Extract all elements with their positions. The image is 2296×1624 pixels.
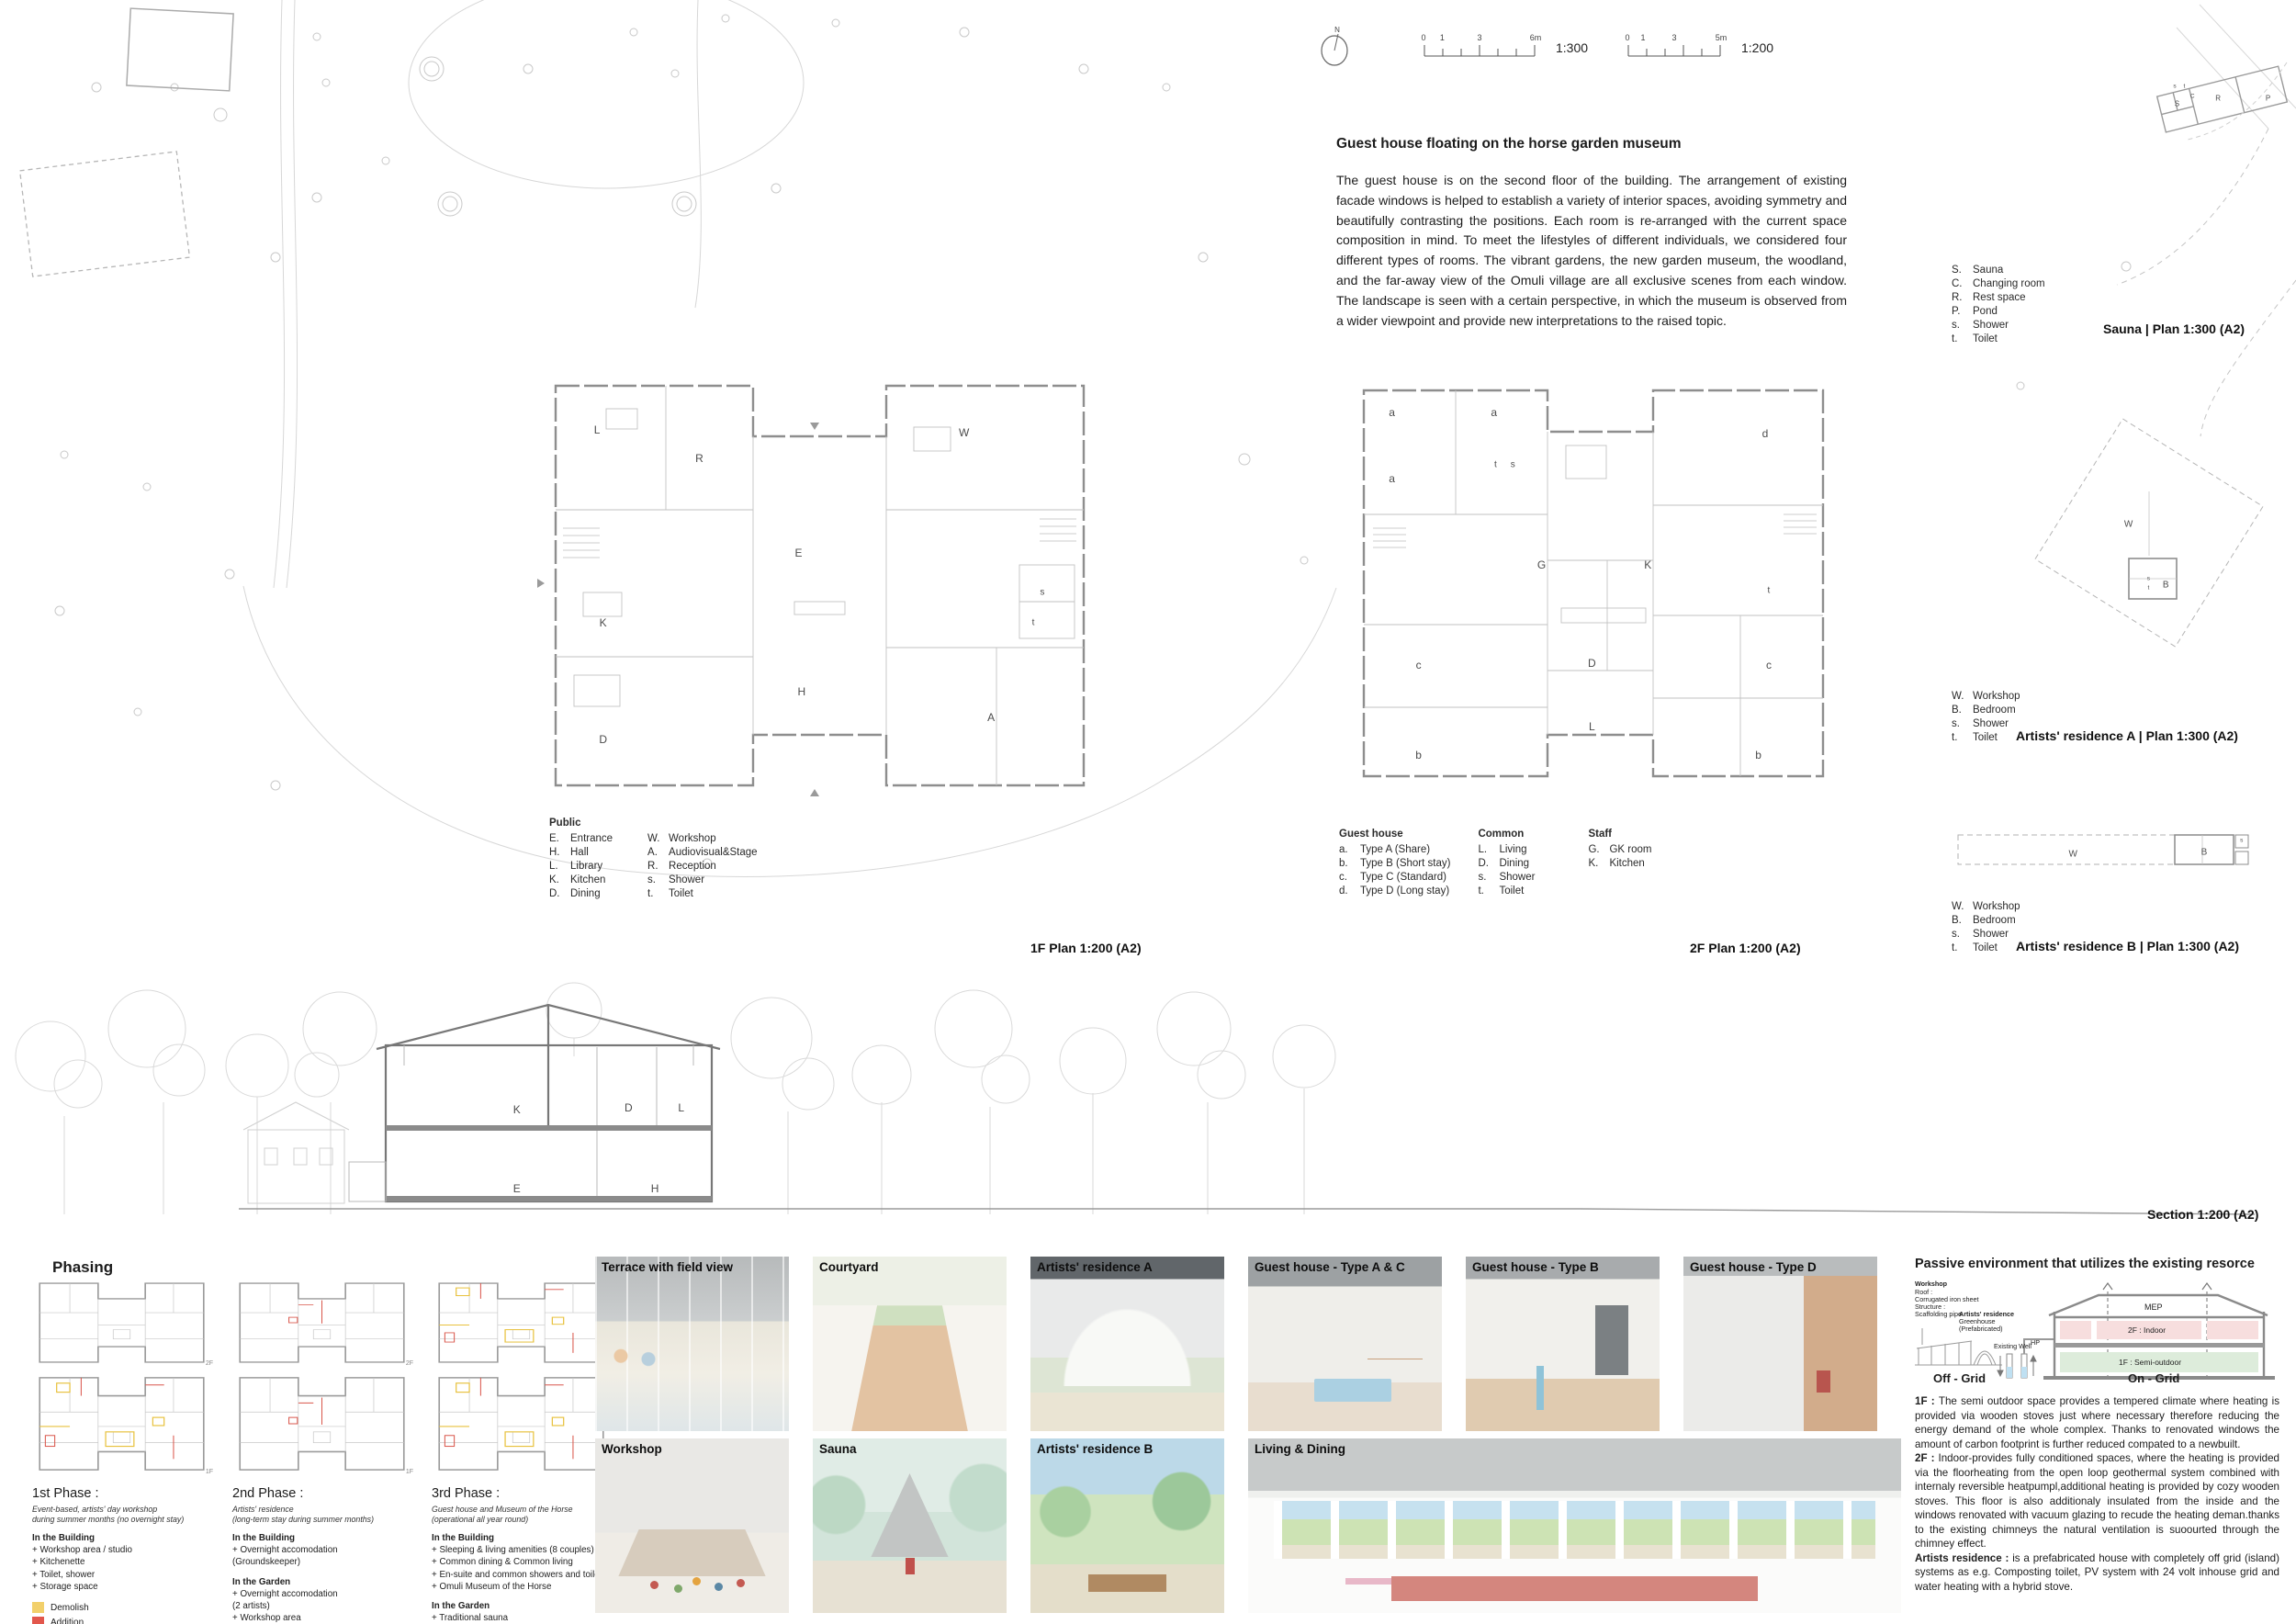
legend-2f-group: StaffG.GK roomK.Kitchen (1588, 828, 1671, 898)
scalebar-number: 5m (1716, 33, 1728, 42)
plan-2f-label: 2F Plan 1:200 (A2) (1690, 941, 1801, 955)
legend-abbr: t. (1952, 942, 1973, 955)
passive-paragraph-lead: 1F : (1915, 1395, 1939, 1407)
legend-resb-wrap: W.WorkshopB.Bedrooms.Showert.Toilet (1952, 900, 2020, 955)
scalebar-number: 3 (1671, 33, 1676, 42)
gallery-image-label: Guest house - Type A & C (1255, 1260, 1405, 1274)
legend-row: t.Toilet (1952, 333, 2045, 346)
gallery-image-shape (851, 1305, 968, 1431)
legend-name: Toilet (669, 887, 693, 901)
room-letter: C (2190, 94, 2195, 100)
legend-2f-group-title: Staff (1588, 828, 1671, 841)
room-letter: a (1389, 472, 1395, 485)
legend-row: t.Toilet (647, 887, 758, 901)
legend-name: Rest space (1973, 291, 2026, 305)
legend-row: t.Toilet (1952, 731, 2020, 745)
legend-name: Hall (570, 846, 589, 860)
gallery-image-artists-residence-a: Artists' residence A (1030, 1257, 1224, 1431)
room-letter: t (1768, 585, 1771, 595)
legend-name: Shower (669, 874, 704, 887)
room-letter: W (2124, 520, 2133, 530)
legend-name: Library (570, 860, 602, 874)
legend-name: Type A (Share) (1360, 843, 1430, 857)
legend-name: Workshop (1973, 900, 2020, 914)
room-letter: t (1494, 460, 1497, 470)
gallery-image-label: Guest house - Type D (1690, 1260, 1817, 1274)
residence-a-label: Artists' residence A | Plan 1:300 (A2) (2016, 728, 2238, 743)
diagram-residence-line2: (Prefabricated) (1959, 1325, 2003, 1333)
legend-row: K.Kitchen (549, 874, 613, 887)
gallery-image-sauna: Sauna (813, 1438, 1007, 1613)
legend-abbr: H. (549, 846, 570, 860)
passive-environment-block: Passive environment that utilizes the ex… (1915, 1257, 2279, 1271)
legend-row: b.Type B (Short stay) (1339, 857, 1450, 871)
legend-abbr: t. (1478, 885, 1499, 898)
legend-1f-title: Public (549, 817, 758, 830)
legend-row: W.Workshop (647, 832, 758, 846)
legend-abbr: B. (1952, 914, 1973, 928)
legend-name: Reception (669, 860, 716, 874)
north-compass: N (1315, 24, 1356, 68)
legend-abbr: A. (647, 846, 669, 860)
legend-abbr: D. (1478, 857, 1499, 871)
presentation-board: N 0136m 1:300 0135m 1:20 (0, 0, 2296, 1624)
room-letter: E (795, 547, 803, 559)
scalebar-number: 0 (1421, 33, 1425, 42)
legend-abbr: W. (1952, 900, 1973, 914)
legend-row: W.Workshop (1952, 690, 2020, 704)
scalebar-1200: 0135m (1627, 33, 1721, 61)
legend-sauna-wrap: S.SaunaC.Changing roomR.Rest spaceP.Pond… (1952, 264, 2045, 346)
diagram-well-label: Existing Well (1994, 1343, 2032, 1350)
room-letter: t (1032, 617, 1035, 627)
room-letter: K (513, 1103, 521, 1116)
diagram-hp-label: HP (2031, 1339, 2040, 1347)
legend-1f-col1: E.EntranceH.HallL.LibraryK.KitchenD.Dini… (549, 832, 613, 901)
passive-paragraph-lead: Artists residence : (1915, 1552, 2012, 1564)
legend-row: d.Type D (Long stay) (1339, 885, 1450, 898)
legend-row: a.Type A (Share) (1339, 843, 1450, 857)
legend-name: Shower (1973, 319, 2009, 333)
legend-name: Changing room (1973, 277, 2045, 291)
legend-row: H.Hall (549, 846, 613, 860)
legend-residence-a: W.WorkshopB.Bedrooms.Showert.Toilet (1952, 690, 2020, 745)
legend-abbr: a. (1339, 843, 1360, 857)
legend-name: Type C (Standard) (1360, 871, 1446, 885)
residence-b-label: Artists' residence B | Plan 1:300 (A2) (2016, 939, 2239, 953)
north-letter: N (1334, 26, 1340, 34)
legend-row: L.Living (1478, 843, 1560, 857)
gallery-image-shape (1817, 1370, 1830, 1393)
legend-abbr: t. (647, 887, 669, 901)
passive-paragraph-text: Indoor-provides fully conditioned spaces… (1915, 1452, 2279, 1550)
room-letter: B (2163, 581, 2169, 591)
room-letter: t (2183, 84, 2185, 90)
legend-row: t.Toilet (1952, 942, 2020, 955)
gallery-image-label: Artists' residence B (1037, 1442, 1153, 1456)
legend-row: s.Shower (1952, 319, 2045, 333)
legend-2f-group: CommonL.LivingD.Dinings.Showert.Toilet (1478, 828, 1560, 898)
sauna-plan-label: Sauna | Plan 1:300 (A2) (2103, 321, 2245, 336)
room-letter: D (1588, 657, 1596, 670)
on-grid-label: On - Grid (2128, 1371, 2179, 1385)
legend-name: Toilet (1973, 731, 1998, 745)
room-letter: L (1589, 720, 1595, 733)
room-letter: R (695, 452, 703, 465)
passive-paragraph: 1F : The semi outdoor space provides a t… (1915, 1394, 2279, 1451)
gallery-image-label: Sauna (819, 1442, 857, 1456)
legend-name: Bedroom (1973, 914, 2016, 928)
legend-abbr: W. (647, 832, 669, 846)
legend-row: B.Bedroom (1952, 914, 2020, 928)
room-letter: W (959, 426, 969, 439)
legend-name: Dining (570, 887, 601, 901)
legend-abbr: d. (1339, 885, 1360, 898)
passive-title: Passive environment that utilizes the ex… (1915, 1257, 2279, 1271)
legend-abbr: s. (1952, 319, 1973, 333)
room-letter: s (2173, 84, 2176, 90)
gallery-image-label: Courtyard (819, 1260, 879, 1274)
gallery-image-terrace-with-field-view: Terrace with field view (595, 1257, 789, 1431)
legend-abbr: s. (1952, 928, 1973, 942)
gallery-image-shape (610, 1347, 665, 1378)
plan-2f-drawing: aaatsdGKtccDLbb (1332, 377, 1855, 790)
legend-row: R.Reception (647, 860, 758, 874)
legend-name: GK room (1609, 843, 1651, 857)
legend-row: G.GK room (1588, 843, 1671, 857)
scalebar-1200-numbers: 0135m (1627, 33, 1721, 42)
passive-paragraph-text: The semi outdoor space provides a temper… (1915, 1395, 2279, 1450)
legend-row: s.Shower (1952, 717, 2020, 731)
legend-residence-b: W.WorkshopB.Bedrooms.Showert.Toilet (1952, 900, 2020, 955)
gallery-image-guest-house-type-a-c: Guest house - Type A & C (1248, 1257, 1442, 1431)
legend-name: Shower (1973, 717, 2009, 731)
legend-row: s.Shower (1478, 871, 1560, 885)
gallery-image-workshop: Workshop (595, 1438, 789, 1613)
legend-abbr: D. (549, 887, 570, 901)
legend-row: s.Shower (647, 874, 758, 887)
gallery-image-courtyard: Courtyard (813, 1257, 1007, 1431)
legend-abbr: s. (1478, 871, 1499, 885)
legend-name: Workshop (1973, 690, 2020, 704)
gallery-image-shape (1595, 1305, 1628, 1375)
intro-block: Guest house floating on the horse garden… (1336, 136, 1847, 332)
gallery-image-shape (1046, 1288, 1209, 1385)
section-drawing: KDLEH (239, 992, 2268, 1222)
legend-name: Audiovisual&Stage (669, 846, 758, 860)
scalebar-number: 3 (1477, 33, 1481, 42)
legend-name: Shower (1973, 928, 2009, 942)
legend-name: Toilet (1973, 942, 1998, 955)
passive-paragraph: Artists residence : is a prefabricated h… (1915, 1551, 2279, 1595)
legend-abbr: R. (647, 860, 669, 874)
sauna-plan-drawing: stSCRP (2149, 46, 2296, 147)
render-gallery: Terrace with field viewCourtyardArtists'… (0, 1257, 1915, 1624)
legend-abbr: P. (1952, 305, 1973, 319)
scalebar-number: 1 (1641, 33, 1646, 42)
scalebar-1300: 0136m (1424, 33, 1536, 61)
scalebar-number: 1 (1440, 33, 1445, 42)
legend-2f-wrap: Guest housea.Type A (Share)b.Type B (Sho… (1339, 828, 1671, 898)
legend-abbr: C. (1952, 277, 1973, 291)
legend-row: K.Kitchen (1588, 857, 1671, 871)
residence-b-drawing: WBs (1954, 822, 2267, 877)
room-letter: a (1389, 406, 1395, 419)
passive-paragraph-lead: 2F : (1915, 1452, 1939, 1464)
legend-row: c.Type C (Standard) (1339, 871, 1450, 885)
passive-paragraph: 2F : Indoor-provides fully conditioned s… (1915, 1451, 2279, 1551)
legend-abbr: B. (1952, 704, 1973, 717)
legend-row: W.Workshop (1952, 900, 2020, 914)
room-letter: H (651, 1182, 659, 1195)
legend-abbr: S. (1952, 264, 1973, 277)
room-letter: s (1040, 587, 1044, 597)
gallery-image-guest-house-type-d: Guest house - Type D (1683, 1257, 1877, 1431)
legend-name: Workshop (669, 832, 716, 846)
legend-row: D.Dining (1478, 857, 1560, 871)
room-letter: L (594, 423, 601, 436)
gallery-image-living-dining: Living & Dining (1248, 1438, 1901, 1613)
legend-name: Entrance (570, 832, 613, 846)
legend-name: Shower (1499, 871, 1535, 885)
legend-1f: Public E.EntranceH.HallL.LibraryK.Kitche… (549, 817, 758, 901)
room-letter: L (678, 1101, 684, 1114)
legend-2f: Guest housea.Type A (Share)b.Type B (Sho… (1339, 828, 1671, 898)
legend-name: Pond (1973, 305, 1998, 319)
room-letter: A (987, 711, 995, 724)
gallery-image-label: Workshop (602, 1442, 662, 1456)
scalebar-1300-numbers: 0136m (1424, 33, 1536, 42)
room-letter: D (625, 1101, 633, 1114)
legend-row: S.Sauna (1952, 264, 2045, 277)
legend-abbr: E. (549, 832, 570, 846)
room-letter: t (2147, 585, 2149, 592)
room-letter: W (2068, 849, 2077, 859)
room-letter: B (2201, 848, 2208, 858)
legend-abbr: K. (1588, 857, 1609, 871)
gallery-image-artists-residence-b: Artists' residence B (1030, 1438, 1224, 1613)
gallery-image-label: Living & Dining (1255, 1442, 1345, 1456)
legend-name: Toilet (1973, 333, 1998, 346)
legend-abbr: s. (647, 874, 669, 887)
room-letter: s (1511, 460, 1515, 470)
intro-title: Guest house floating on the horse garden… (1336, 136, 1847, 152)
gallery-image-accent (692, 1577, 701, 1585)
gallery-image-label: Terrace with field view (602, 1260, 733, 1274)
legend-abbr: L. (1478, 843, 1499, 857)
legend-abbr: L. (549, 860, 570, 874)
legend-name: Sauna (1973, 264, 2003, 277)
plan-1f-label: 1F Plan 1:200 (A2) (1030, 941, 1142, 955)
legend-row: C.Changing room (1952, 277, 2045, 291)
gallery-image-accent (906, 1558, 915, 1574)
legend-name: Living (1499, 843, 1526, 857)
gallery-image-shape (1314, 1379, 1391, 1402)
legend-row: A.Audiovisual&Stage (647, 846, 758, 860)
gallery-image-guest-house-type-b: Guest house - Type B (1466, 1257, 1660, 1431)
legend-name: Kitchen (1609, 857, 1644, 871)
gallery-image-shape (1088, 1574, 1165, 1592)
legend-name: Toilet (1499, 885, 1524, 898)
legend-1f-col2: W.WorkshopA.Audiovisual&StageR.Reception… (647, 832, 758, 901)
gallery-image-shape (1274, 1501, 1874, 1559)
gallery-image-shape (618, 1529, 765, 1576)
legend-abbr: c. (1339, 871, 1360, 885)
room-letter: a (1491, 406, 1497, 419)
room-letter: G (1537, 558, 1546, 571)
legend-name: Type B (Short stay) (1360, 857, 1450, 871)
legend-row: B.Bedroom (1952, 704, 2020, 717)
passive-paragraphs: 1F : The semi outdoor space provides a t… (1915, 1394, 2279, 1594)
room-letter: K (1644, 558, 1651, 571)
legend-abbr: b. (1339, 857, 1360, 871)
legend-2f-group: Guest housea.Type A (Share)b.Type B (Sho… (1339, 828, 1450, 898)
legend-2f-group-title: Common (1478, 828, 1560, 841)
diagram-workshop-line4: Scaffolding pipe (1915, 1311, 1962, 1318)
legend-sauna: S.SaunaC.Changing roomR.Rest spaceP.Pond… (1952, 264, 2045, 346)
legend-name: Dining (1499, 857, 1529, 871)
room-letter: R (2215, 95, 2221, 103)
legend-name: Type D (Long stay) (1360, 885, 1449, 898)
legend-name: Kitchen (570, 874, 605, 887)
room-letter: c (1766, 659, 1772, 671)
room-letter: D (599, 733, 607, 746)
room-letter: b (1415, 749, 1422, 761)
gallery-image-label: Guest house - Type B (1472, 1260, 1599, 1274)
room-letter: P (2266, 95, 2270, 103)
room-letter: E (513, 1182, 521, 1195)
legend-abbr: K. (549, 874, 570, 887)
gallery-image-label: Artists' residence A (1037, 1260, 1153, 1274)
room-letter: s (2147, 575, 2150, 581)
off-grid-label: Off - Grid (1933, 1371, 1986, 1385)
diagram-2f-label: 2F : Indoor (2128, 1325, 2166, 1335)
intro-body: The guest house is on the second floor o… (1336, 171, 1847, 332)
room-letter: b (1755, 749, 1761, 761)
residence-a-drawing: WBst (2011, 395, 2278, 671)
legend-row: R.Rest space (1952, 291, 2045, 305)
room-letter: d (1762, 427, 1769, 440)
scalebar-number: 6m (1530, 33, 1542, 42)
legend-row: D.Dining (549, 887, 613, 901)
legend-2f-group-title: Guest house (1339, 828, 1450, 841)
room-letter: s (2240, 838, 2243, 844)
gallery-image-shape (871, 1473, 948, 1557)
legend-abbr: G. (1588, 843, 1609, 857)
gallery-image-accent (1391, 1576, 1757, 1601)
section-label: Section 1:200 (A2) (2147, 1207, 2258, 1222)
legend-row: t.Toilet (1478, 885, 1560, 898)
scalebar-number: 0 (1625, 33, 1629, 42)
legend-abbr: t. (1952, 731, 1973, 745)
scale-ratio-200: 1:200 (1741, 40, 1773, 55)
room-letter: K (600, 616, 607, 629)
room-letter: H (798, 685, 806, 698)
legend-row: s.Shower (1952, 928, 2020, 942)
room-letter: S (2175, 99, 2179, 107)
legend-name: Bedroom (1973, 704, 2016, 717)
room-letter: c (1416, 659, 1422, 671)
legend-resa-wrap: W.WorkshopB.Bedrooms.Showert.Toilet (1952, 690, 2020, 745)
legend-abbr: t. (1952, 333, 1973, 346)
legend-abbr: s. (1952, 717, 1973, 731)
legend-row: E.Entrance (549, 832, 613, 846)
legend-abbr: W. (1952, 690, 1973, 704)
legend-row: L.Library (549, 860, 613, 874)
plan-1f-drawing: LRWEKstHAD (519, 372, 1120, 804)
legend-row: P.Pond (1952, 305, 2045, 319)
diagram-1f-label: 1F : Semi-outdoor (2119, 1358, 2181, 1367)
legend-abbr: R. (1952, 291, 1973, 305)
scale-ratio-300: 1:300 (1556, 40, 1588, 55)
diagram-mep-label: MEP (2144, 1303, 2163, 1313)
